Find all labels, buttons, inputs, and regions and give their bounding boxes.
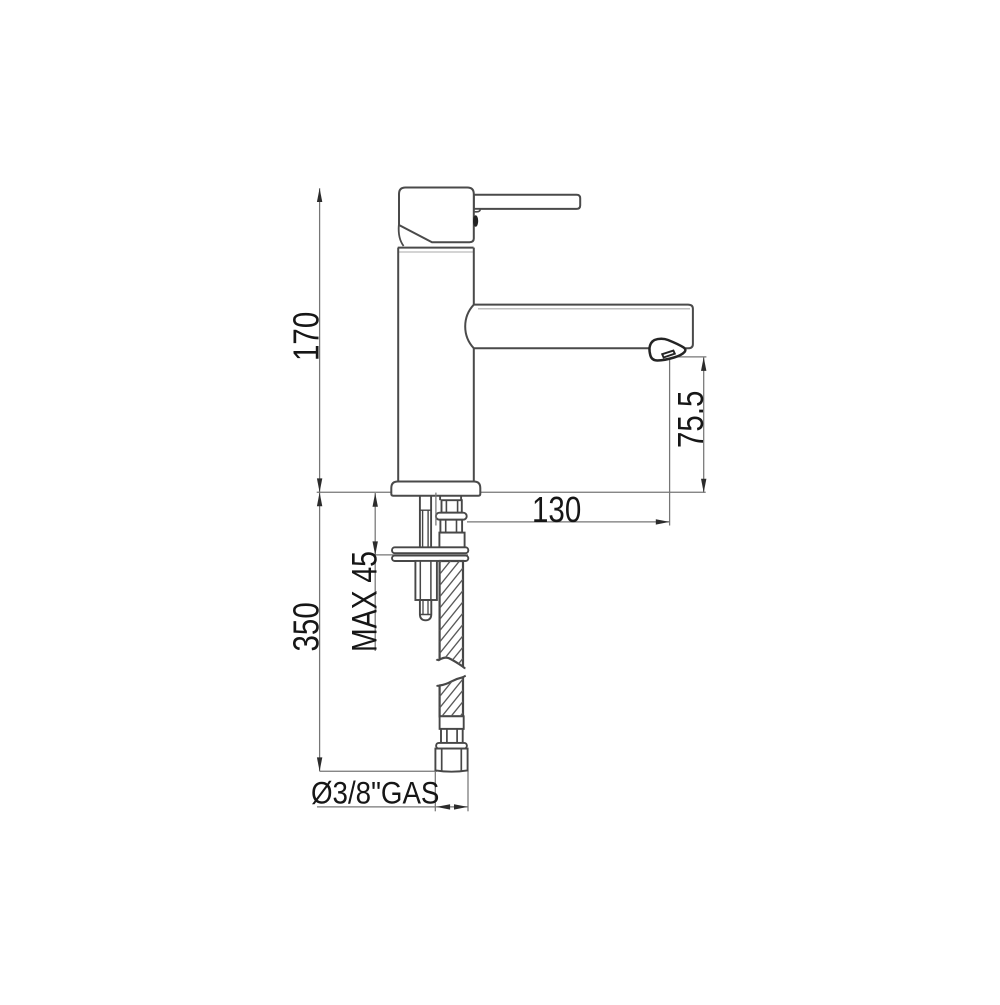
svg-text:MAX 45: MAX 45: [344, 551, 384, 652]
svg-text:350: 350: [286, 602, 326, 651]
svg-text:75.5: 75.5: [670, 391, 710, 448]
svg-text:Ø3/8"GAS: Ø3/8"GAS: [311, 776, 439, 811]
svg-text:170: 170: [286, 312, 326, 361]
svg-text:130: 130: [532, 489, 581, 529]
